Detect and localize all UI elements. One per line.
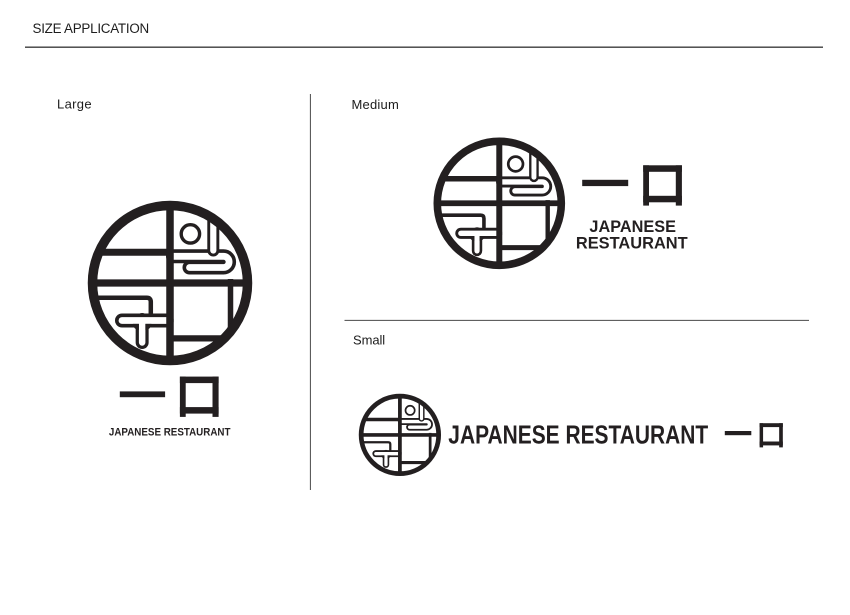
svg-text:JAPANESE RESTAURANT: JAPANESE RESTAURANT <box>109 427 231 439</box>
svg-text:Small: Small <box>353 332 386 347</box>
svg-text:Large: Large <box>57 97 92 112</box>
svg-text:Medium: Medium <box>352 97 400 112</box>
svg-text:JAPANESE RESTAURANT: JAPANESE RESTAURANT <box>448 419 708 449</box>
svg-text:SIZE APPLICATION: SIZE APPLICATION <box>33 21 150 36</box>
svg-text:RESTAURANT: RESTAURANT <box>576 233 688 252</box>
